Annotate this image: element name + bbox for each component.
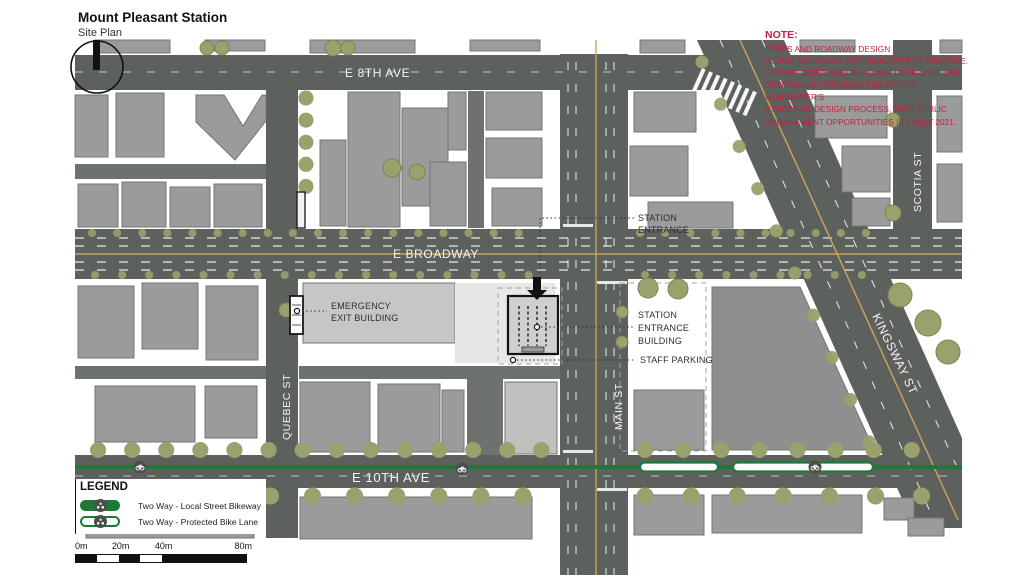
station-entrance-building-shape — [508, 296, 558, 354]
callout-station-entrance-line2: ENTRANCE — [638, 225, 689, 235]
note-line: STREET RE-DESIGN PROCESS, WITH PUBLIC — [765, 103, 970, 115]
scale-bar-graphic — [75, 554, 247, 563]
legend-item-local-street-bikeway: Two Way - Local Street Bikeway — [80, 500, 266, 511]
scale-label-20m: 20m — [112, 541, 130, 551]
scale-bar: 0m 20m 40m 80m — [75, 541, 251, 563]
street-label-quebec: QUEBEC ST — [281, 374, 293, 440]
page-subtitle: Site Plan — [78, 27, 227, 39]
title-block: Mount Pleasant Station Site Plan — [78, 10, 227, 39]
callout-entrance-building-line2: ENTRANCE — [638, 323, 689, 333]
local-street-bikeway-icon — [80, 500, 120, 511]
bike-icon — [94, 515, 107, 528]
site-plan-canvas: E 8TH AVE E BROADWAY E 10TH AVE QUEBEC S… — [0, 0, 1024, 575]
street-label-e8th: E 8TH AVE — [345, 66, 410, 80]
street-label-broadway: E BROADWAY — [393, 247, 479, 261]
street-label-e10th: E 10TH AVE — [352, 470, 430, 485]
callout-emergency-exit-line1: EMERGENCY — [331, 301, 391, 311]
legend-heading: LEGEND — [80, 481, 266, 493]
legend: LEGEND Two Way - Local Street Bikeway Tw… — [75, 479, 266, 534]
street-label-scotia: SCOTIA ST — [912, 152, 924, 212]
note-line: ALONG BROADWAY ARE INDICATIVE AT THIS TI… — [765, 55, 970, 67]
note-line: TREES AND ROADWAY DESIGN — [765, 43, 970, 55]
legend-item-protected-bike-lane: Two Way - Protected Bike Lane — [80, 516, 266, 527]
callout-station-entrance-line1: STATION — [638, 213, 677, 223]
protected-bike-lane-icon — [80, 516, 120, 527]
page-title: Mount Pleasant Station — [78, 10, 227, 25]
callout-entrance-building-line1: STATION — [638, 310, 677, 320]
callout-entrance-building-line3: BUILDING — [638, 336, 682, 346]
note-heading: NOTE: — [765, 29, 970, 41]
street-label-main: MAIN ST — [613, 383, 625, 430]
note-line: ENGAGEMENT OPPORTUNITIES IN EARLY 2021. — [765, 116, 970, 128]
note-line: DETERMINED THROUGH THE CITY OF VANCOUVER… — [765, 79, 970, 103]
scale-label-80m: 80m — [234, 541, 252, 551]
legend-item-label: Two Way - Protected Bike Lane — [138, 517, 258, 527]
emergency-exit-building — [290, 296, 303, 334]
design-note: NOTE: TREES AND ROADWAY DESIGN ALONG BRO… — [765, 29, 970, 128]
callout-emergency-exit-line2: EXIT BUILDING — [331, 313, 398, 323]
bike-icon — [94, 499, 107, 512]
legend-item-label: Two Way - Local Street Bikeway — [138, 501, 261, 511]
callout-staff-parking: STAFF PARKING — [640, 355, 713, 365]
vent-structure — [297, 192, 305, 228]
scale-label-0m: 0m — [75, 541, 88, 551]
note-line: FUTURE TREES AND ROADWAY DESIGN WILL BE — [765, 67, 970, 79]
scale-label-40m: 40m — [155, 541, 173, 551]
